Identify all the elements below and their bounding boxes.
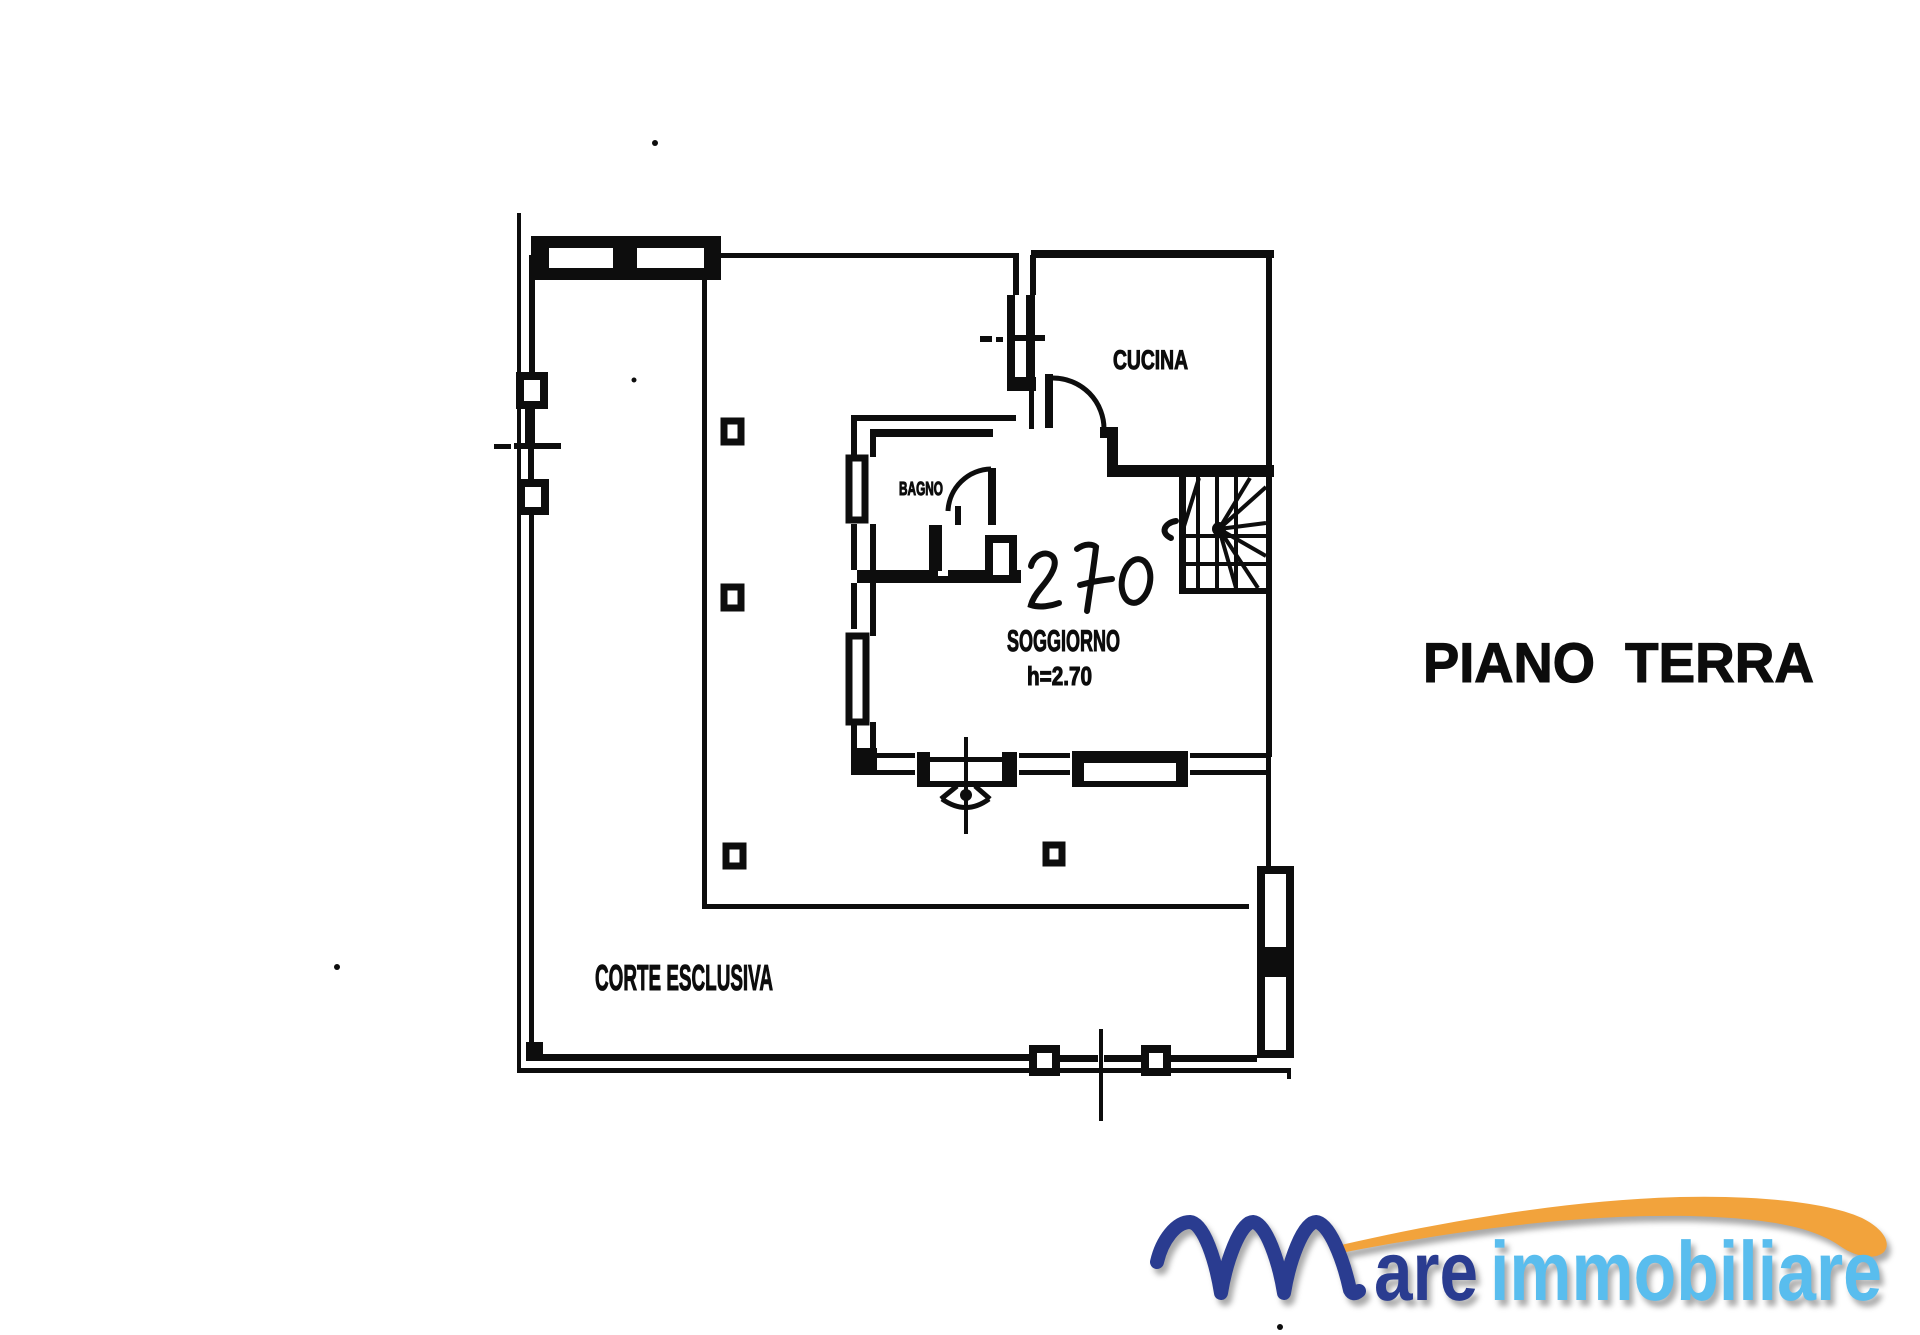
svg-text:h=2.70: h=2.70 <box>1027 661 1092 691</box>
svg-text:BAGNO: BAGNO <box>899 479 943 500</box>
svg-text:SOGGIORNO: SOGGIORNO <box>1007 625 1120 658</box>
svg-text:CORTE ESCLUSIVA: CORTE ESCLUSIVA <box>595 957 773 998</box>
svg-text:PIANO: PIANO <box>1423 631 1595 694</box>
svg-text:CUCINA: CUCINA <box>1113 345 1188 375</box>
svg-text:TERRA: TERRA <box>1625 631 1814 694</box>
svg-text:are: are <box>1374 1224 1478 1318</box>
svg-text:immobiliare: immobiliare <box>1490 1224 1882 1318</box>
